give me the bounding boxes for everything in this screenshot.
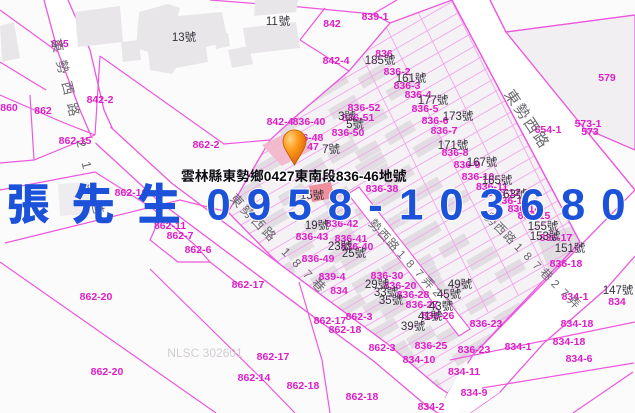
svg-text:836-49: 836-49 xyxy=(302,253,335,265)
svg-text:842-2: 842-2 xyxy=(87,94,114,106)
svg-text:NLSC 302601: NLSC 302601 xyxy=(167,346,243,360)
svg-text:860: 860 xyxy=(0,102,18,114)
svg-text:7: 7 xyxy=(322,144,328,156)
svg-text:839-1: 839-1 xyxy=(362,11,389,23)
svg-text:167: 167 xyxy=(467,157,486,169)
svg-text:41: 41 xyxy=(418,311,431,323)
svg-text:862-7: 862-7 xyxy=(167,230,194,242)
svg-text:842: 842 xyxy=(323,18,341,30)
svg-text:573: 573 xyxy=(581,126,599,138)
svg-text:834: 834 xyxy=(330,285,348,297)
svg-text:836-18: 836-18 xyxy=(550,258,583,270)
svg-text:834: 834 xyxy=(608,296,626,308)
svg-text:862-17: 862-17 xyxy=(232,279,265,291)
svg-text:836-40: 836-40 xyxy=(293,116,326,128)
svg-text:862-14: 862-14 xyxy=(238,372,271,384)
svg-text:836-23: 836-23 xyxy=(470,318,503,330)
svg-text:185: 185 xyxy=(365,55,384,67)
svg-text:834-10: 834-10 xyxy=(403,354,436,366)
svg-text:836-25: 836-25 xyxy=(415,340,448,352)
svg-text:5: 5 xyxy=(346,119,352,131)
svg-text:862: 862 xyxy=(34,105,52,117)
svg-text:834-18: 834-18 xyxy=(561,318,594,330)
svg-text:173: 173 xyxy=(443,111,462,123)
svg-text:834-9: 834-9 xyxy=(461,387,488,399)
svg-text:25: 25 xyxy=(342,248,355,260)
svg-text:862-20: 862-20 xyxy=(91,366,124,378)
svg-text:11: 11 xyxy=(266,16,278,28)
svg-text:862-18: 862-18 xyxy=(346,391,379,403)
svg-text:834-1: 834-1 xyxy=(505,341,532,353)
svg-text:47: 47 xyxy=(307,141,319,153)
svg-text:862-18: 862-18 xyxy=(287,380,320,392)
svg-text:862-2: 862-2 xyxy=(193,139,220,151)
svg-text:834-6: 834-6 xyxy=(566,353,593,365)
svg-text:834-2: 834-2 xyxy=(418,401,445,413)
svg-text:23: 23 xyxy=(328,241,341,253)
svg-text:862-3: 862-3 xyxy=(346,311,373,323)
svg-text:862-18: 862-18 xyxy=(329,324,362,336)
svg-text:3: 3 xyxy=(338,111,344,123)
svg-text:839-4: 839-4 xyxy=(319,271,346,283)
svg-text:842-4: 842-4 xyxy=(323,55,350,67)
svg-text:39: 39 xyxy=(401,321,414,333)
svg-text:13: 13 xyxy=(172,32,185,44)
svg-text:862-3: 862-3 xyxy=(369,342,396,354)
svg-text:836-7: 836-7 xyxy=(431,125,458,137)
svg-text:147: 147 xyxy=(603,285,622,297)
svg-text:177: 177 xyxy=(418,95,437,107)
svg-text:862-6: 862-6 xyxy=(185,244,212,256)
svg-text:153: 153 xyxy=(530,231,549,243)
svg-text:834-18: 834-18 xyxy=(553,336,586,348)
svg-text:834-11: 834-11 xyxy=(448,366,480,378)
svg-text:0958-103680: 0958-103680 xyxy=(206,181,635,230)
svg-text:171: 171 xyxy=(438,140,457,152)
svg-text:579: 579 xyxy=(598,72,616,84)
svg-text:842-4: 842-4 xyxy=(267,116,294,128)
svg-text:161: 161 xyxy=(396,73,415,85)
svg-text:836-43: 836-43 xyxy=(296,231,329,243)
svg-text:862-17: 862-17 xyxy=(257,351,290,363)
svg-text:35: 35 xyxy=(379,295,392,307)
svg-text:862-20: 862-20 xyxy=(80,291,113,303)
svg-text:836-23: 836-23 xyxy=(458,344,491,356)
svg-text:151: 151 xyxy=(555,243,574,255)
